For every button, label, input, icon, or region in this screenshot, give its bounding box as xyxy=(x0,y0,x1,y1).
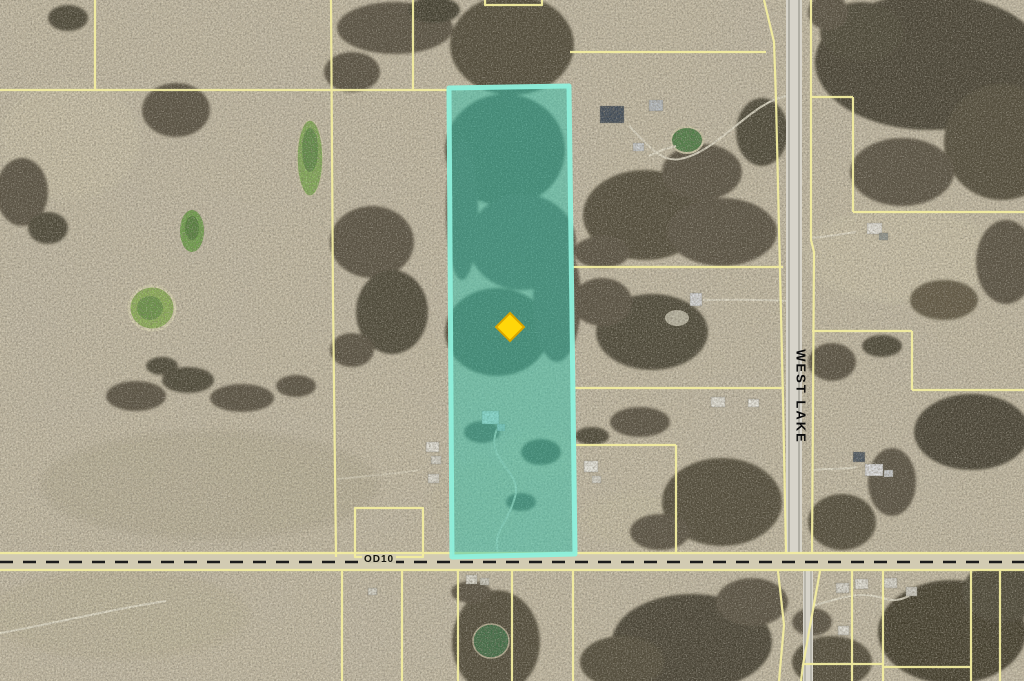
road-label-od10: OD10 xyxy=(362,554,396,566)
west-lake-road-surface xyxy=(786,0,802,554)
road-label-west-lake: WEST LAKE xyxy=(794,340,809,454)
aerial-parcel-map: WEST LAKE OD10 xyxy=(0,0,1024,681)
map-canvas xyxy=(0,0,1024,681)
